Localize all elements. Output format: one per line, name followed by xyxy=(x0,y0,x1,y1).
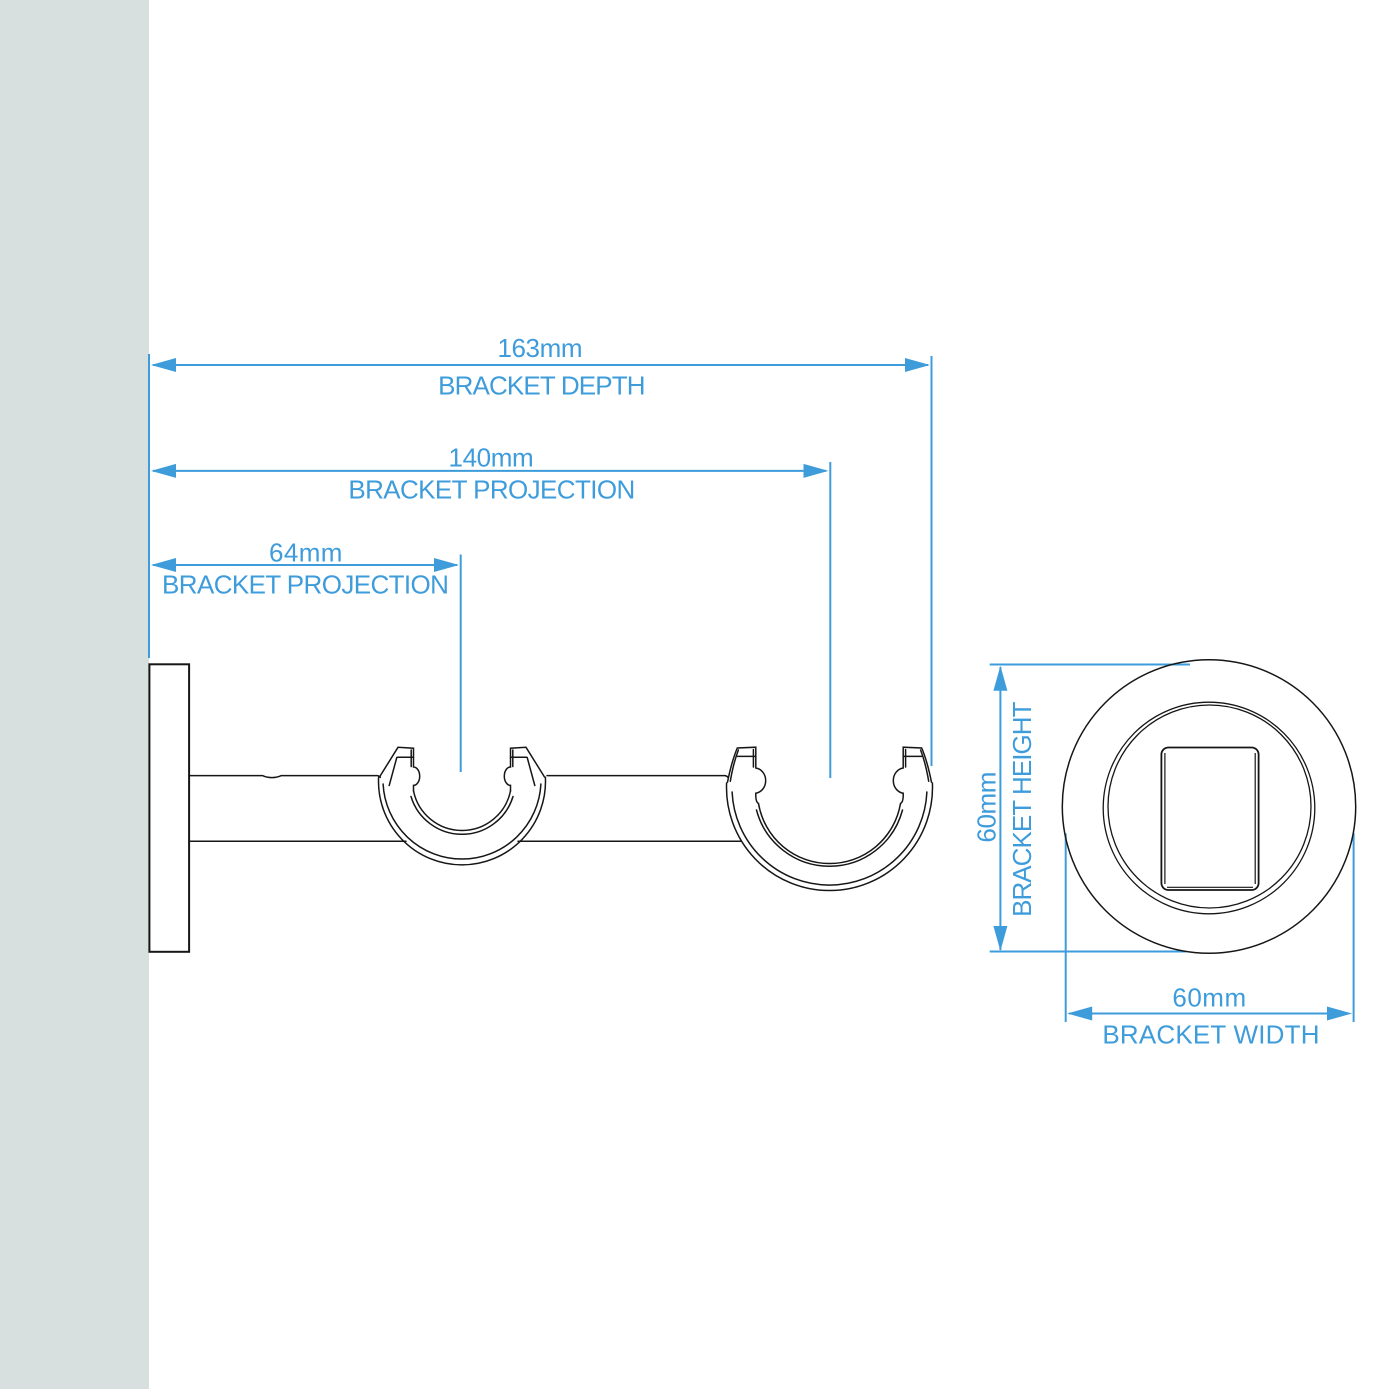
svg-text:64mm: 64mm xyxy=(269,537,343,567)
svg-text:BRACKET HEIGHT: BRACKET HEIGHT xyxy=(1007,701,1037,917)
svg-text:140mm: 140mm xyxy=(449,443,534,473)
svg-text:BRACKET PROJECTION: BRACKET PROJECTION xyxy=(348,475,634,505)
svg-text:163mm: 163mm xyxy=(497,333,582,363)
svg-text:60mm: 60mm xyxy=(1172,983,1246,1013)
svg-text:BRACKET PROJECTION: BRACKET PROJECTION xyxy=(162,570,448,600)
svg-text:60mm: 60mm xyxy=(972,772,1002,843)
svg-text:BRACKET WIDTH: BRACKET WIDTH xyxy=(1102,1019,1319,1049)
svg-text:BRACKET DEPTH: BRACKET DEPTH xyxy=(438,371,645,401)
